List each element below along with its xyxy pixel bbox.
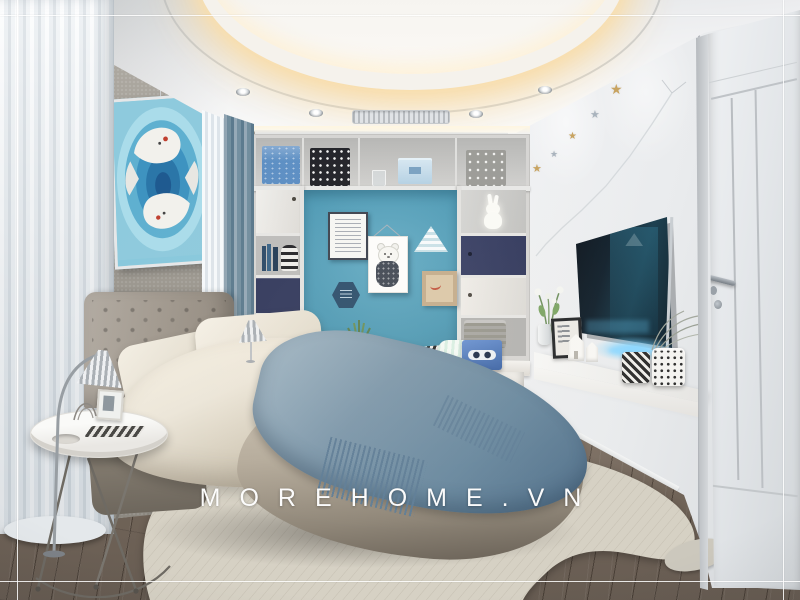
door-lock-knob <box>714 300 722 309</box>
storage-box-blue <box>262 146 300 184</box>
cabinet-door-navy <box>256 278 300 313</box>
drawer-line <box>396 399 524 400</box>
book <box>262 246 266 271</box>
cabinet-door-white <box>256 190 300 233</box>
wood-square-frame <box>422 271 457 306</box>
sleep-mask-print <box>468 350 496 360</box>
cubby-divider <box>302 138 304 186</box>
sleep-mask-box <box>462 340 502 370</box>
hexagon-text-lines <box>340 290 352 301</box>
storage-box-lightblue <box>398 158 432 184</box>
cabinet-knob <box>468 252 472 256</box>
squiggle-art <box>429 280 441 290</box>
bear-nose <box>387 256 390 258</box>
succulent-leaves <box>344 320 374 350</box>
book <box>273 247 278 271</box>
reading-lamp-stem <box>250 342 252 362</box>
cabinet-door-navy <box>461 236 526 275</box>
frame-border-left <box>17 0 18 600</box>
poster-text-lines <box>335 219 361 253</box>
bunny-body <box>484 212 502 229</box>
builtin-shelving-unit <box>252 126 532 416</box>
frame-border-bottom <box>0 581 800 582</box>
bear-eye <box>384 253 386 255</box>
seat-front-panel <box>252 370 395 406</box>
lantern-door <box>322 350 325 356</box>
bear-picture-frame <box>368 236 408 293</box>
storage-box-black-dots <box>310 148 350 186</box>
glass-cup <box>372 170 386 187</box>
book <box>267 244 271 271</box>
bear-eye <box>390 253 392 255</box>
door-handle <box>708 275 736 287</box>
bear-body <box>376 261 399 287</box>
door-groove-left <box>731 98 740 480</box>
cubby-divider <box>358 138 360 186</box>
door <box>702 2 800 590</box>
storage-box-gray-dots <box>466 150 506 186</box>
watermark-text: MOREHOME.VN <box>200 484 601 513</box>
frame-border-top <box>0 15 800 16</box>
mini-backpack <box>281 245 298 271</box>
bedroom-interior-photo: ★ ★ ★ ★ ★ ★ ★ <box>0 0 800 600</box>
door-bottom-groove <box>712 485 798 497</box>
cabinet-door-white <box>461 278 526 315</box>
cabinet-knob <box>468 293 472 297</box>
open-shelf-books <box>256 236 300 275</box>
door-handle-rosette <box>710 286 717 295</box>
cabinet-knob <box>292 197 296 201</box>
box-label <box>409 167 421 174</box>
frame-border-right <box>783 0 784 600</box>
bunny-light <box>480 194 506 232</box>
drawer-line <box>396 386 524 387</box>
door-groove-right <box>755 90 764 488</box>
drawer-cabinet <box>395 372 524 412</box>
reading-lamp-base <box>246 360 255 363</box>
poster-frame <box>328 212 368 260</box>
cubby-divider <box>455 138 457 186</box>
